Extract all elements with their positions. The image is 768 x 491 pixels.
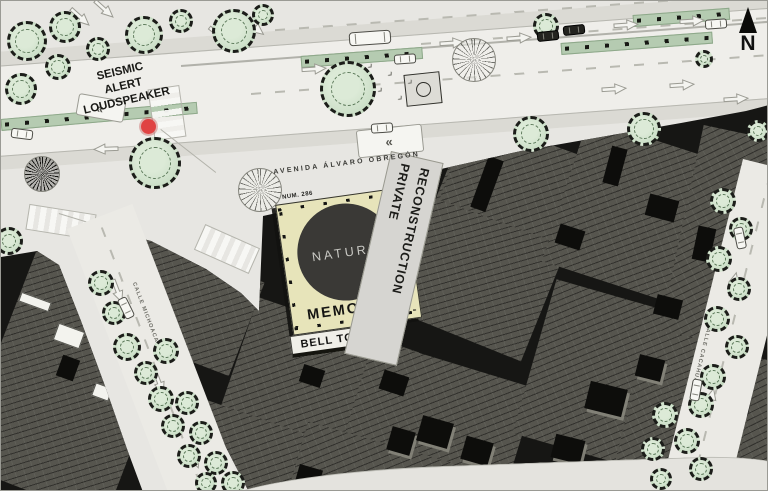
tree-icon xyxy=(7,21,47,61)
tree-icon xyxy=(747,120,768,142)
branch-tree-icon xyxy=(452,38,496,82)
tree-icon xyxy=(148,386,174,412)
north-arrow-icon xyxy=(739,7,757,33)
tree-icon xyxy=(320,61,376,117)
arrow-icon xyxy=(723,92,750,106)
tree-icon xyxy=(221,471,245,491)
tree-icon xyxy=(704,306,730,332)
tree-icon xyxy=(710,188,736,214)
tree-icon xyxy=(195,472,217,491)
tree-icon xyxy=(725,335,749,359)
tree-icon xyxy=(212,9,256,53)
tree-icon xyxy=(5,73,37,105)
tree-icon xyxy=(627,112,661,146)
arrow-icon xyxy=(679,14,706,28)
tree-icon xyxy=(113,333,141,361)
arrow-icon xyxy=(93,143,119,156)
tree-icon xyxy=(88,270,114,296)
tree-icon xyxy=(652,402,678,428)
tree-icon xyxy=(700,364,726,390)
tree-icon xyxy=(86,37,110,61)
arrow-icon xyxy=(90,0,117,22)
tree-icon xyxy=(129,137,181,189)
tree-icon xyxy=(153,338,179,364)
north-indicator: N xyxy=(731,7,765,55)
car-icon xyxy=(394,53,417,65)
tree-icon xyxy=(169,9,193,33)
tree-icon xyxy=(0,227,23,255)
tree-icon xyxy=(252,4,274,26)
kiosk-dome-icon xyxy=(415,81,431,97)
tree-icon xyxy=(189,421,213,445)
branch-tree-icon xyxy=(24,156,60,192)
car-icon xyxy=(371,122,394,134)
crosswalk xyxy=(194,224,260,274)
tree-icon xyxy=(641,437,665,461)
tree-icon xyxy=(49,11,81,43)
tree-icon xyxy=(134,361,158,385)
tree-icon xyxy=(175,391,199,415)
bus-icon xyxy=(349,30,392,47)
tree-icon xyxy=(513,116,549,152)
tree-icon xyxy=(161,414,185,438)
tree-icon xyxy=(177,444,201,468)
arrow-icon xyxy=(669,78,696,92)
chevron-left-glyph: « xyxy=(385,133,396,149)
tree-icon xyxy=(674,428,700,454)
north-label: N xyxy=(731,33,765,55)
site-plan: « « › › › › › xyxy=(0,0,768,491)
tree-icon xyxy=(706,246,732,272)
tree-icon xyxy=(125,16,163,54)
kiosk-icon xyxy=(403,71,442,107)
seismic-alert-marker xyxy=(141,119,156,134)
arrow-icon xyxy=(506,31,533,45)
arrow-icon xyxy=(601,82,628,96)
tree-icon xyxy=(695,50,713,68)
car-icon xyxy=(705,18,728,30)
tree-icon xyxy=(689,457,713,481)
arrow-icon xyxy=(613,18,640,32)
tree-icon xyxy=(650,468,672,490)
tree-icon xyxy=(727,277,751,301)
